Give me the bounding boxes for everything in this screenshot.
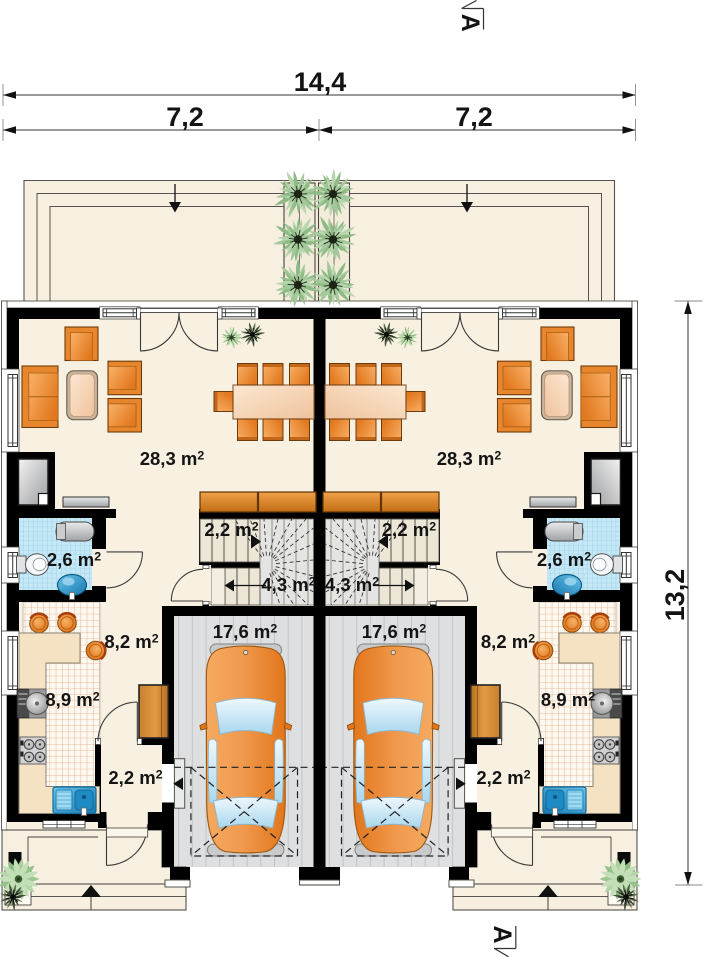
svg-text:2,2 m2: 2,2 m2 [476, 767, 530, 788]
svg-text:4,3 m2: 4,3 m2 [261, 574, 315, 595]
svg-text:2,6 m2: 2,6 m2 [47, 549, 101, 570]
svg-text:2,6 m2: 2,6 m2 [537, 549, 591, 570]
svg-text:14,4: 14,4 [294, 67, 347, 97]
svg-text:13,2: 13,2 [660, 569, 690, 622]
svg-text:8,9 m2: 8,9 m2 [45, 689, 99, 710]
svg-text:7,2: 7,2 [455, 102, 493, 132]
svg-text:7,2: 7,2 [166, 102, 204, 132]
svg-text:4,3 m2: 4,3 m2 [325, 574, 379, 595]
svg-text:28,3 m2: 28,3 m2 [437, 448, 502, 469]
svg-text:17,6 m2: 17,6 m2 [213, 621, 278, 642]
svg-text:8,2 m2: 8,2 m2 [481, 631, 535, 652]
svg-text:2,2 m2: 2,2 m2 [382, 519, 436, 540]
svg-text:2,2 m2: 2,2 m2 [204, 519, 258, 540]
svg-text:A: A [456, 14, 484, 32]
svg-text:8,9 m2: 8,9 m2 [541, 689, 595, 710]
svg-text:17,6 m2: 17,6 m2 [362, 621, 427, 642]
svg-text:2,2 m2: 2,2 m2 [108, 767, 162, 788]
svg-text:28,3 m2: 28,3 m2 [140, 448, 205, 469]
svg-text:A: A [488, 925, 516, 943]
svg-text:8,2 m2: 8,2 m2 [104, 631, 158, 652]
